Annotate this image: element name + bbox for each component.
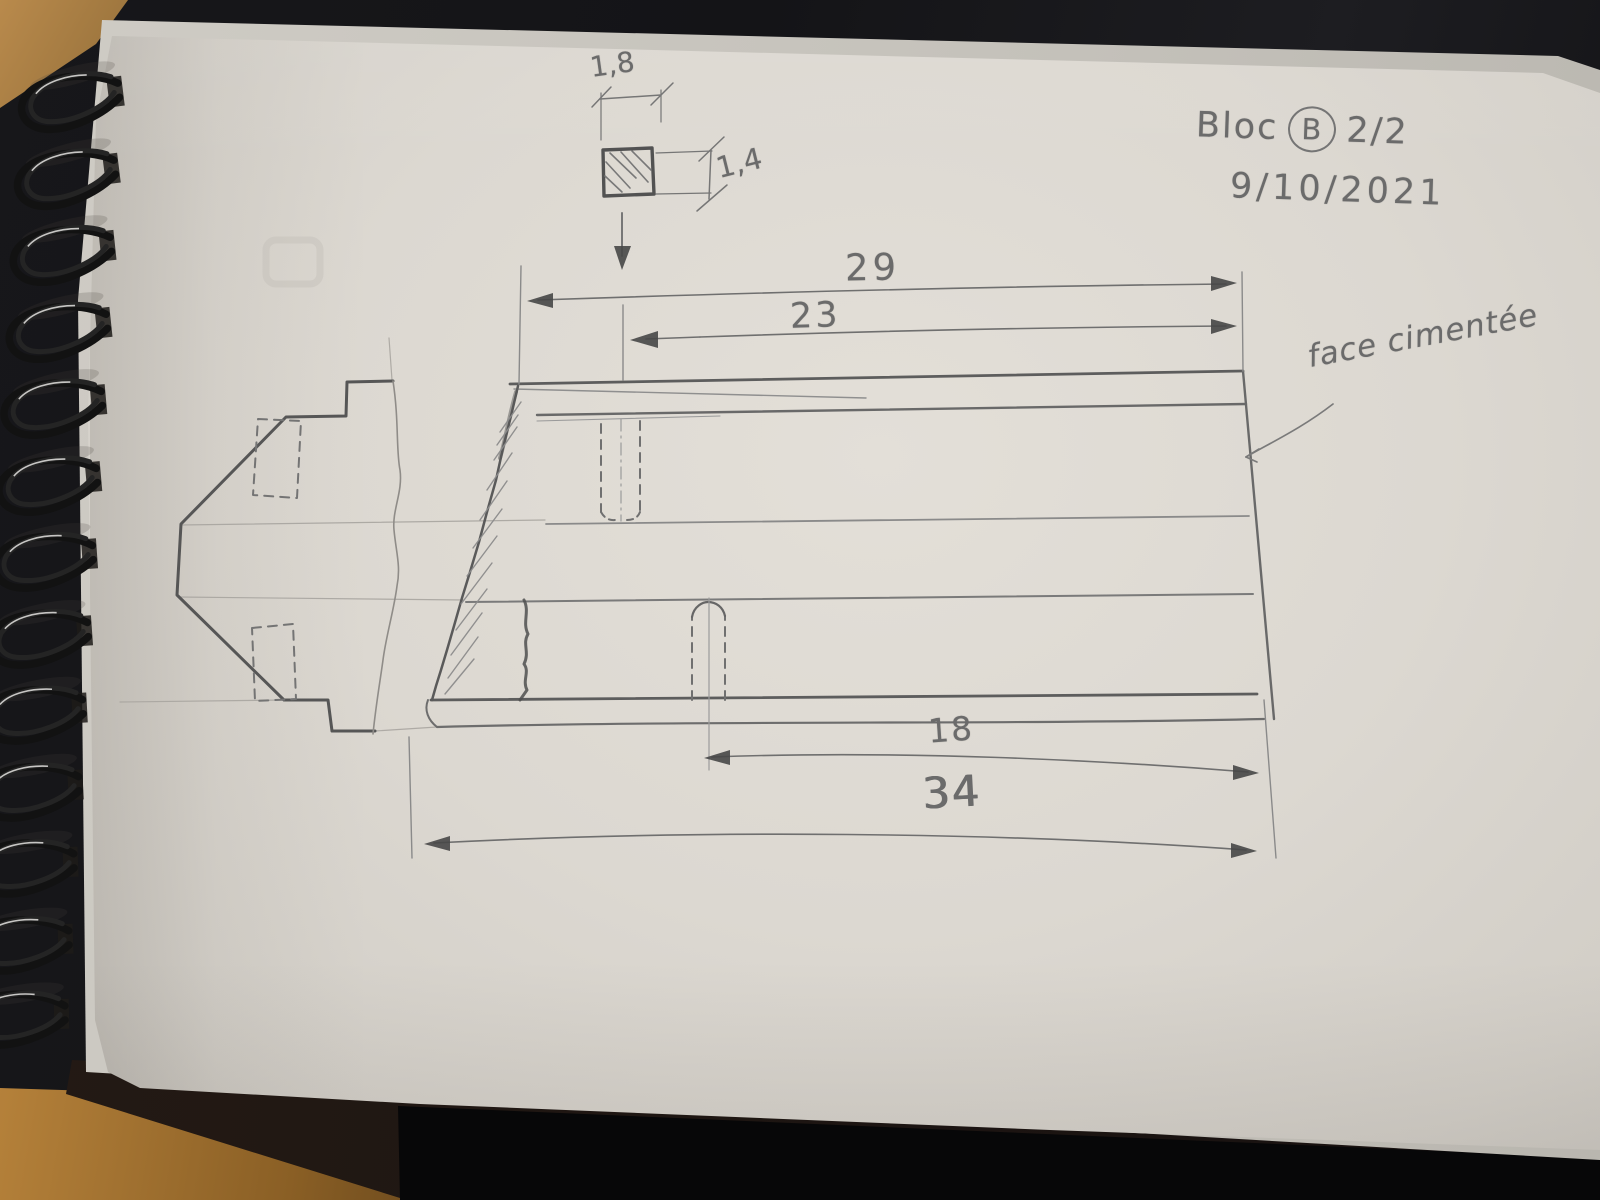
spiral-loops xyxy=(0,55,130,1051)
sheet-number: 2/2 xyxy=(1346,111,1410,153)
dimension-label-square-width: 1,8 xyxy=(588,45,637,84)
bloc-letter-circled: B xyxy=(1288,106,1338,154)
title-block: Bloc B 2/2 xyxy=(1195,102,1409,155)
bloc-label: Bloc xyxy=(1195,105,1279,148)
dimension-label-34: 34 xyxy=(921,766,982,819)
dimension-label-23: 23 xyxy=(789,295,841,337)
date-label: 9/10/2021 xyxy=(1229,166,1446,213)
dimension-label-18: 18 xyxy=(927,708,976,750)
notebook-photo: Bloc B 2/2 9/10/2021 face cimentée 29 23… xyxy=(0,0,1600,1200)
dimension-label-29: 29 xyxy=(845,246,901,290)
